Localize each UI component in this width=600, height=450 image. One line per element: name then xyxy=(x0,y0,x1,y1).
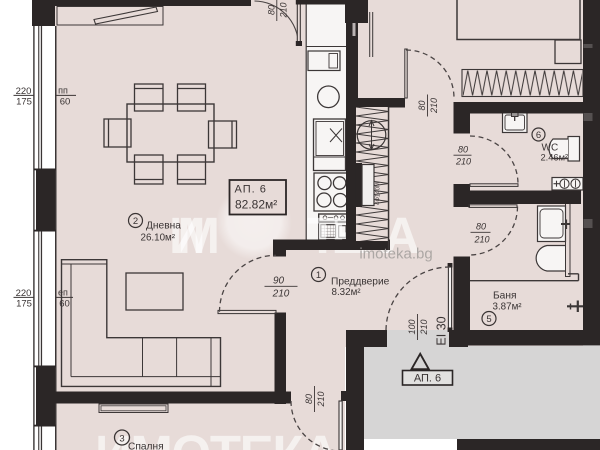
svg-text:100: 100 xyxy=(407,319,417,334)
svg-text:175: 175 xyxy=(16,96,32,107)
svg-text:90: 90 xyxy=(273,276,285,287)
svg-text:26.10м²: 26.10м² xyxy=(141,233,176,244)
svg-text:3: 3 xyxy=(119,434,124,445)
svg-text:210: 210 xyxy=(419,319,429,335)
svg-text:4Ф140М: 4Ф140М xyxy=(376,182,382,205)
svg-text:Спалня: Спалня xyxy=(128,442,164,450)
svg-text:210: 210 xyxy=(473,235,489,245)
svg-text:2.46м²: 2.46м² xyxy=(541,153,569,163)
svg-text:8.32м²: 8.32м² xyxy=(332,287,362,298)
svg-text:60: 60 xyxy=(60,96,71,107)
svg-text:210: 210 xyxy=(316,391,326,407)
svg-text:60: 60 xyxy=(59,299,70,310)
svg-text:210: 210 xyxy=(278,2,288,18)
svg-text:82.82м²: 82.82м² xyxy=(235,198,277,212)
svg-text:ИМ: ИМ xyxy=(169,207,220,264)
svg-text:АП. 6: АП. 6 xyxy=(414,373,441,385)
svg-text:80: 80 xyxy=(266,5,276,15)
svg-text:6: 6 xyxy=(536,130,541,141)
svg-text:210: 210 xyxy=(429,98,439,114)
svg-text:imoteka.bg: imoteka.bg xyxy=(359,246,432,263)
svg-text:175: 175 xyxy=(16,299,32,310)
svg-text:3.87м²: 3.87м² xyxy=(493,302,523,313)
svg-text:210: 210 xyxy=(455,157,471,167)
svg-text:Баня: Баня xyxy=(493,291,517,302)
svg-text:еп: еп xyxy=(58,288,68,298)
svg-text:210: 210 xyxy=(272,289,290,300)
svg-text:2: 2 xyxy=(133,216,138,227)
svg-text:АП. 6: АП. 6 xyxy=(235,184,267,196)
svg-text:80: 80 xyxy=(417,100,427,110)
svg-text:ЕІ 30: ЕІ 30 xyxy=(435,316,449,345)
svg-text:80: 80 xyxy=(304,394,314,404)
svg-text:5: 5 xyxy=(486,314,491,325)
svg-text:80: 80 xyxy=(458,145,468,155)
svg-text:пп: пп xyxy=(58,86,68,96)
svg-text:Преддверие: Преддверие xyxy=(331,277,390,288)
svg-text:80: 80 xyxy=(476,222,486,232)
svg-text:1: 1 xyxy=(316,270,321,281)
svg-text:Дневна: Дневна xyxy=(146,221,181,232)
